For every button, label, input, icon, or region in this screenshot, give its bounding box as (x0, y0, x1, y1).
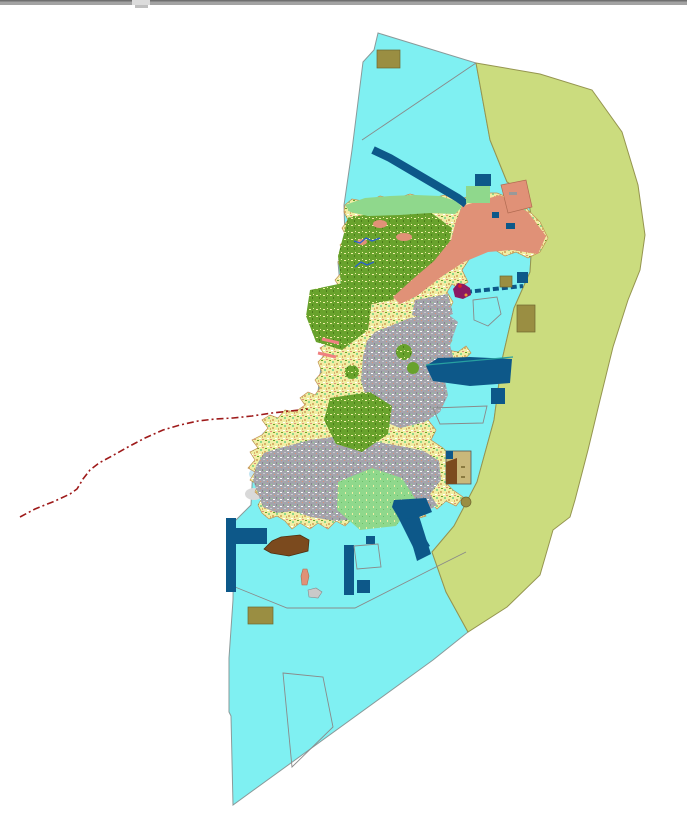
facility-tick (461, 466, 465, 468)
navy-speck (506, 223, 515, 229)
khaki-rect-top (377, 50, 400, 68)
navy-rect-ne-coast (475, 174, 491, 186)
facility-brown-part (446, 458, 457, 484)
salmon-patch (396, 233, 412, 241)
top-bar-thumb[interactable] (135, 5, 148, 8)
facility-tick (461, 476, 465, 478)
salmon-patch (373, 220, 387, 228)
forest-patch (407, 362, 419, 374)
navy-speck-south (366, 536, 375, 544)
map-viewport (0, 0, 687, 821)
khaki-rect-south (248, 607, 273, 624)
red-port-dot (458, 284, 462, 288)
east-coast-facility (446, 451, 471, 484)
top-bar-notch[interactable] (132, 0, 150, 5)
navy-pier-vertical (344, 545, 354, 595)
map-canvas[interactable] (0, 0, 687, 821)
salmon-islet (301, 569, 309, 585)
top-bar-edge (0, 0, 687, 2)
forest-patch (345, 365, 359, 379)
facility-navy-corner (446, 451, 453, 459)
gray-mark-in-salmon (509, 192, 517, 195)
navy-square-south (357, 580, 370, 593)
navy-t-structure-stem (226, 518, 236, 592)
navy-rect-east (517, 272, 528, 283)
orange-port-dot (465, 294, 468, 297)
navy-t-structure-arm (236, 528, 267, 544)
khaki-rect-small-east (500, 276, 512, 287)
forest-patch (396, 344, 412, 360)
khaki-blob-coast (461, 497, 471, 507)
green-rect-ne (466, 186, 490, 203)
navy-speck (492, 212, 499, 218)
navy-rect-southeast (491, 388, 505, 404)
khaki-rect-east (517, 305, 535, 332)
